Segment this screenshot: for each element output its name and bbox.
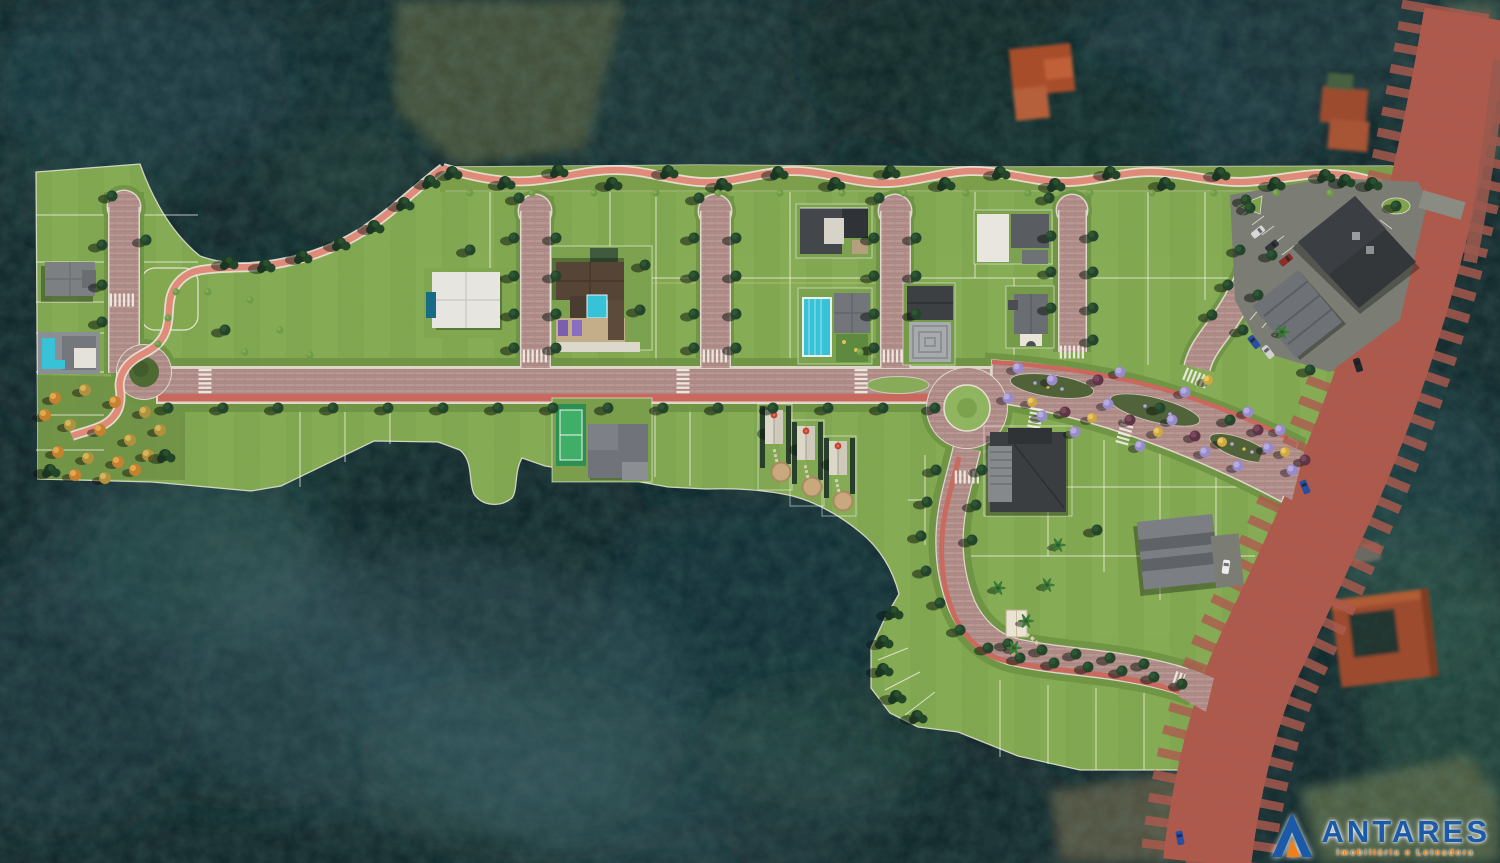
house-with-l-pool	[38, 332, 100, 374]
lap-pool	[804, 299, 830, 355]
estate-brown-roof-complex	[551, 246, 652, 352]
house-modern-flat-roof	[796, 204, 872, 258]
boulevard-pavement	[158, 368, 990, 395]
roundabout-island-center	[957, 398, 977, 418]
branch-building-large	[984, 426, 1072, 516]
antares-logo-mark	[1269, 811, 1315, 859]
masterplan-screenshot: ANTARES Imobiliária e Loteadora	[0, 0, 1500, 863]
boulevard-median-island	[867, 377, 929, 394]
antares-logo: ANTARES Imobiliária e Loteadora	[1269, 811, 1490, 859]
masterplan-rendering	[0, 0, 1500, 863]
house-gray-hip-roof	[41, 262, 96, 302]
logo-brand-name: ANTARES	[1321, 816, 1490, 847]
antares-logo-text: ANTARES Imobiliária e Loteadora	[1321, 816, 1490, 859]
house-chapel-tower	[1006, 286, 1054, 348]
estate-pool-dark	[426, 292, 436, 318]
estate-courtyard-pool	[587, 295, 607, 318]
house-courtyard-maze	[903, 283, 955, 365]
logo-brand-tagline: Imobiliária e Loteadora	[1337, 849, 1475, 857]
